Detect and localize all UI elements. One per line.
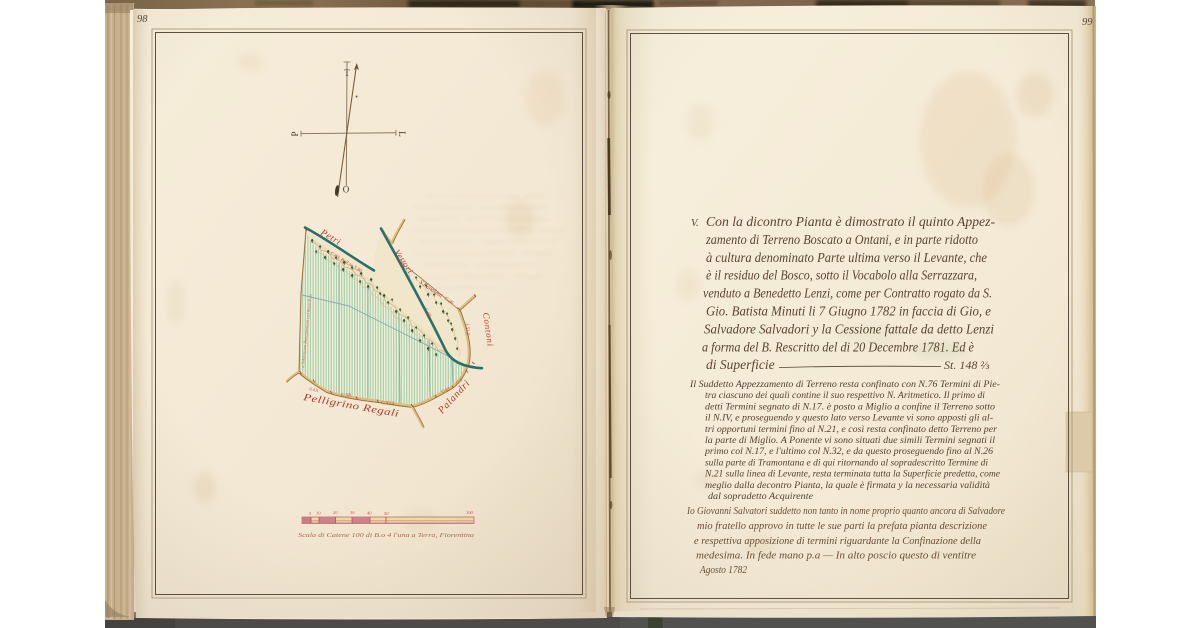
- svg-text:meglio dalla decontro Pianta,: meglio dalla decontro Pianta, la quale è…: [705, 480, 990, 491]
- svg-text:detti Termini segnato di N.17.: detti Termini segnato di N.17. è posto a…: [705, 401, 995, 412]
- svg-text:50: 50: [384, 511, 389, 516]
- svg-text:98: 98: [137, 14, 148, 25]
- svg-text:Scala di Catene 100 di B.o 4 l: Scala di Catene 100 di B.o 4 l'una a Ter…: [298, 532, 474, 539]
- svg-text:è il residuo del Bosco, sotto: è il residuo del Bosco, sotto il Vocabol…: [706, 268, 977, 283]
- svg-text:Il Suddetto Appezzamento di Te: Il Suddetto Appezzamento di Terreno rest…: [689, 379, 1000, 390]
- svg-text:O: O: [343, 185, 350, 195]
- svg-text:1.51.5: 1.51.5: [464, 323, 470, 336]
- svg-text:10: 10: [316, 511, 321, 516]
- svg-text:T: T: [344, 68, 350, 78]
- svg-text:C.58.: C.58.: [341, 393, 352, 399]
- svg-text:venduto a Benedetto Lenzi, com: venduto a Benedetto Lenzi, come per Cont…: [703, 286, 992, 301]
- svg-text:V.: V.: [691, 218, 699, 229]
- svg-text:Io Giovanni Salvatori suddetto: Io Giovanni Salvatori suddetto non tanto…: [686, 506, 1005, 517]
- svg-text:tri opportuni termini fino al: tri opportuni termini fino al N.21, e co…: [705, 424, 997, 435]
- svg-text:100: 100: [466, 510, 474, 515]
- svg-text:medesima. In fede mano p.a —: medesima. In fede mano p.a — In alto pos…: [696, 551, 976, 562]
- svg-text:Agosto 1782: Agosto 1782: [699, 565, 748, 576]
- svg-text:la parte di Miglio. A Ponente: la parte di Miglio. A Ponente vi sono si…: [705, 436, 995, 446]
- svg-text:a forma del B. Rescritto del d: a forma del B. Rescritto del di 20 Decem…: [702, 339, 974, 354]
- svg-text:30: 30: [350, 510, 355, 515]
- svg-text:dal sopradetto Acquirente: dal sopradetto Acquirente: [708, 492, 813, 502]
- svg-text:L: L: [397, 131, 407, 137]
- svg-text:40: 40: [367, 511, 372, 516]
- svg-text:à cultura denominato Parte ult: à cultura denominato Parte ultima verso …: [706, 250, 987, 265]
- svg-text:Gio. Batista Minuti li 7 Giugn: Gio. Batista Minuti li 7 Giugno 1782 in …: [706, 304, 991, 319]
- svg-text:e respettiva apposizione di te: e respettiva apposizione di termini rigu…: [694, 536, 981, 547]
- svg-text:il N.IV, e proseguendo y quest: il N.IV, e proseguendo y questo lato ver…: [705, 414, 993, 424]
- svg-text:20: 20: [333, 510, 338, 515]
- svg-text:mio fratello approvo in tutte: mio fratello approvo in tutte le sue par…: [697, 521, 987, 532]
- svg-text:Con la dicontro Pianta è dimos: Con la dicontro Pianta è dimostrato il q…: [706, 214, 996, 229]
- svg-text:tra ciascuno dei quali contine: tra ciascuno dei quali contine il suo re…: [705, 391, 985, 401]
- svg-text:99: 99: [1082, 17, 1093, 28]
- svg-text:P: P: [290, 131, 300, 136]
- svg-text:N.21 sulla linea di Levante, r: N.21 sulla linea di Levante, resta termi…: [704, 469, 1000, 480]
- svg-text:Salvadore Salvadori y la Cessi: Salvadore Salvadori y la Cessione fattal…: [704, 321, 994, 336]
- svg-text:C.52.5: C.52.5: [381, 401, 395, 407]
- svg-text:St. 148 ⅔: St. 148 ⅔: [944, 358, 989, 372]
- svg-text:sulla parte di Tramontana e di: sulla parte di Tramontana e di qui ritor…: [705, 458, 988, 468]
- svg-text:di Superficie: di Superficie: [706, 357, 775, 372]
- svg-text:primo col N.17, e l'ultimo col: primo col N.17, e l'ultimo col N.32, e d…: [704, 446, 993, 457]
- svg-text:zamento di Terreno Boscato a O: zamento di Terreno Boscato a Ontani, e i…: [705, 232, 978, 247]
